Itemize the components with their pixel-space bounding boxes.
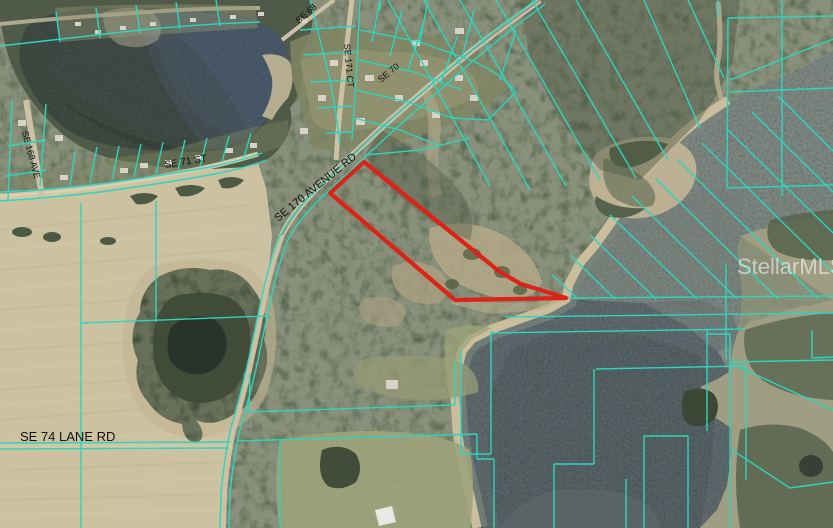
- svg-text:SE 74 LANE RD: SE 74 LANE RD: [20, 429, 115, 444]
- svg-text:StellarMLS: StellarMLS: [737, 254, 833, 279]
